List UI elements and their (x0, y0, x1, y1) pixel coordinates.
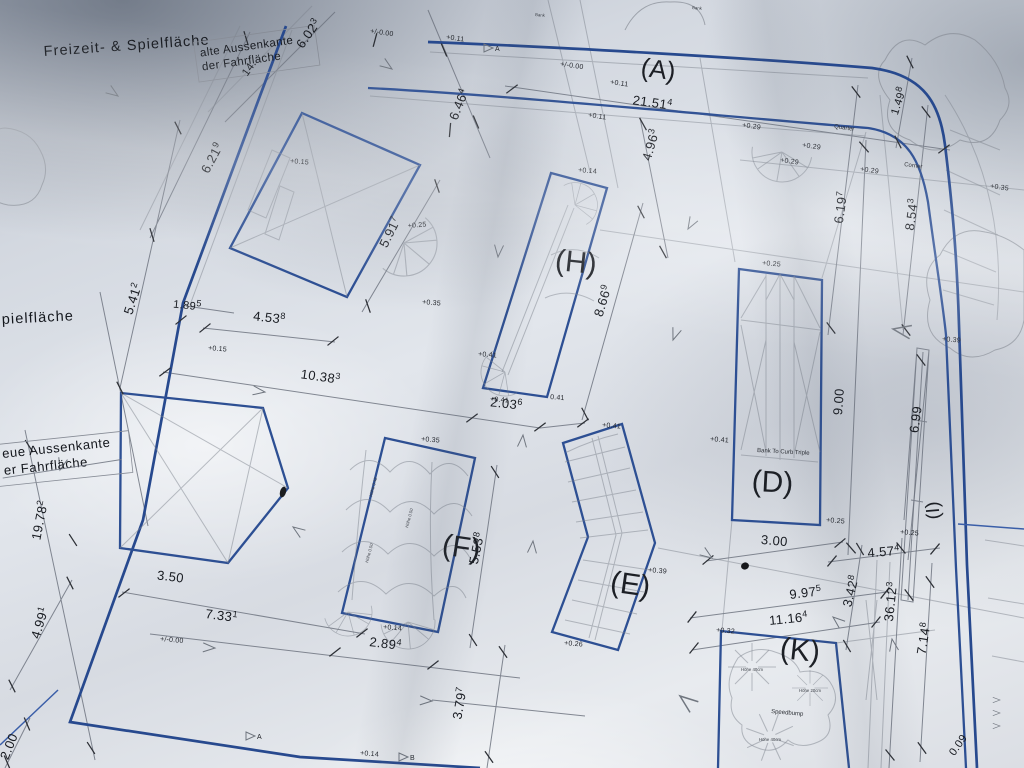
note-neue-aussenkante: eue Aussenkante er Fahrfläche (0, 431, 133, 487)
elev-014: +0.14 (383, 624, 402, 633)
construction-lines (5, 0, 1024, 768)
elev-041-plain: 0.41 (550, 394, 565, 402)
elev-000: +/-0.00 (160, 636, 184, 645)
plan-drawing: (A) (H) (D) (E) (F) (K) (I) Freizeit- & … (0, 0, 1024, 768)
label-bank-to-curb: Bank To Curb Triple (757, 448, 810, 457)
elev-025: +0.25 (408, 221, 427, 230)
dim-6219: 6.219 (197, 140, 226, 176)
elev-029: +0.29 (780, 157, 800, 167)
dim-2894: 2.894 (369, 634, 403, 653)
building-outline-pentagon (120, 393, 288, 563)
elev-011: +0.11 (588, 112, 607, 121)
dim-5412: 5.412 (120, 281, 145, 317)
dim-11164: 11.164 (768, 609, 808, 628)
area-labels: (A) (H) (D) (E) (F) (K) (I) (440, 52, 945, 669)
dim-3797: 3.797 (449, 686, 470, 721)
pentagon-diagonals (120, 393, 288, 563)
roof-lines-northwest-building (230, 113, 420, 297)
speck (740, 561, 750, 570)
elev-025: +0.25 (762, 260, 781, 269)
dim-699: 6.99 (906, 405, 925, 434)
dim-3428: 3.428 (839, 573, 862, 608)
dim-8543: 8.543 (901, 197, 921, 231)
dim-1895: 1.895 (173, 296, 203, 314)
dim-350: 3.50 (156, 567, 185, 585)
elev-011: +0.11 (610, 79, 629, 88)
dim-200: 2.00 (0, 731, 21, 762)
label-hoehe-042: Höhe 0.42 (368, 476, 378, 497)
elev-014: +0.14 (360, 750, 379, 759)
elev-041: +0.41 (710, 436, 729, 445)
elev-029: +0.29 (860, 166, 880, 176)
elev-014: +0.14 (578, 167, 597, 176)
area-label-h: (H) (554, 244, 599, 281)
note-freizeit-spielflaeche: Freizeit- & Spielfläche (43, 32, 210, 60)
dim-4538: 4.538 (253, 308, 287, 327)
elev-029: +0.29 (742, 122, 762, 132)
label-hoehe-050a: Höhe 0.50 (404, 507, 414, 528)
elev-035: +0.35 (422, 299, 441, 308)
area-label-i: (I) (922, 501, 944, 521)
elevation-labels: +/-0.00 +/-0.00 +/-0.00 +0.11 +0.11 +0.1… (160, 28, 1009, 759)
site-plan-photo: (A) (H) (D) (E) (F) (K) (I) Freizeit- & … (0, 0, 1024, 768)
dim-300: 3.00 (760, 532, 788, 549)
elev-035: +0.35 (421, 436, 440, 445)
dim-8669: 8.669 (590, 283, 614, 318)
label-corner: Corner (904, 162, 923, 170)
section-letter-a: A (495, 46, 500, 53)
dim-10383: 10.383 (300, 366, 342, 387)
dim-9975: 9.975 (788, 583, 822, 602)
label-speedbump: Speedbump (771, 709, 804, 718)
label-quarter: Quarter (834, 124, 855, 133)
dim-7148: 7.148 (913, 621, 933, 655)
elev-015: +0.15 (290, 158, 309, 167)
area-label-e: (E) (608, 565, 652, 603)
elev-000: +/-0.00 (560, 61, 584, 71)
ramp-h-contours (502, 205, 599, 375)
elev-025: +0.25 (900, 529, 919, 538)
tree-canopy (0, 128, 46, 205)
dim-900: 9.00 (830, 388, 847, 416)
label-hoehe-20: Höhe 20cm (799, 688, 821, 693)
bank-to-curb-d-lattice (741, 274, 820, 462)
elev-029: +0.29 (802, 142, 822, 152)
label-hoehe-40: Höhe 40cm (741, 667, 763, 672)
photo-specks (279, 486, 750, 571)
elev-000: +/-0.00 (370, 28, 394, 38)
area-label-a: (A) (639, 52, 678, 87)
note-spielflaeche-partial: pielfläche (1, 308, 74, 328)
area-label-d: (D) (751, 465, 794, 500)
elev-026: +0.26 (564, 640, 583, 649)
elev-015: +0.15 (208, 345, 227, 354)
elev-041: +0.41 (478, 351, 497, 360)
dim-7331: 7.331 (205, 606, 239, 625)
elev-039: +0.39 (942, 336, 961, 345)
label-hoehe-050b: Höhe 0.50 (364, 542, 374, 563)
elev-025: +0.25 (826, 517, 845, 526)
dim-4963: 4.963 (639, 127, 663, 162)
dim-4574: 4.574 (867, 542, 901, 560)
elev-032: +0.32 (716, 627, 735, 636)
section-letter-b: B (410, 755, 415, 762)
bank-e-ribs (565, 434, 650, 640)
section-marker-a-bottom: A (246, 732, 262, 741)
label-bank-1: Bank (535, 12, 546, 18)
tree-canopies (0, 2, 1024, 357)
area-label-k: (K) (778, 632, 821, 669)
label-hoehe-40b: Höhe 40cm (759, 737, 781, 742)
label-bank-2: Bank (692, 5, 703, 11)
section-marker-b: B (399, 753, 415, 762)
dim-5917: 5.917 (376, 214, 404, 250)
feature-outline-h (483, 173, 607, 397)
section-letter-a: A (257, 734, 262, 741)
dim-009: 0.09 (947, 732, 970, 758)
